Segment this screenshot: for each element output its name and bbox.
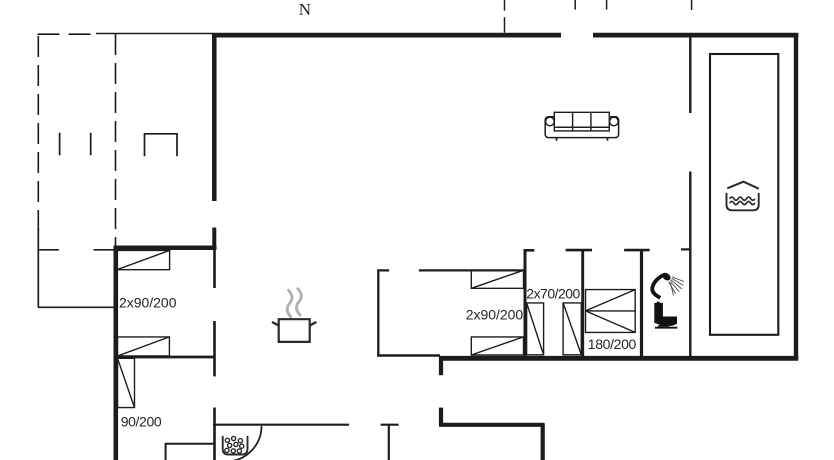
svg-text:2x70/200: 2x70/200 [526,286,580,302]
svg-text:2x90/200: 2x90/200 [119,294,177,310]
svg-text:180/200: 180/200 [588,336,637,352]
svg-text:90/200: 90/200 [121,414,162,430]
svg-text:2x90/200: 2x90/200 [466,306,524,322]
svg-text:N: N [299,0,311,19]
